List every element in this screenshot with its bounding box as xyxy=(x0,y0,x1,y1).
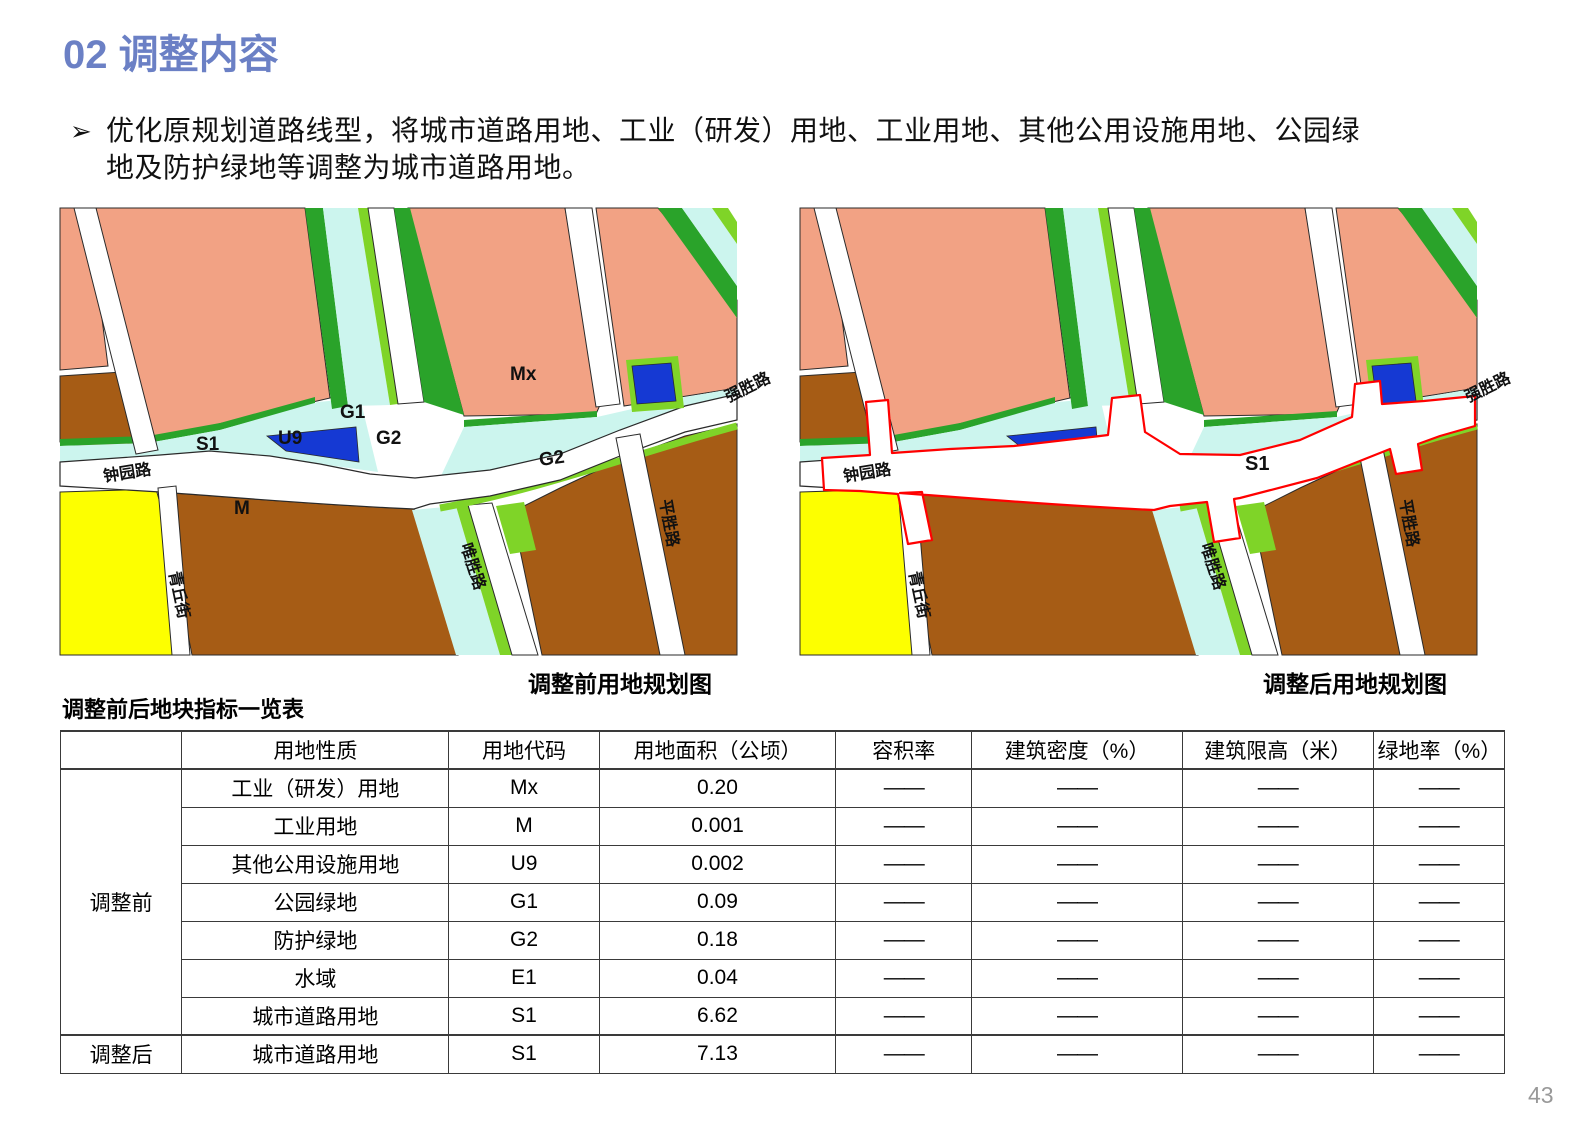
group-label-after: 调整后 xyxy=(61,1035,182,1073)
cell-density: —— xyxy=(972,769,1183,807)
zone-m-block-main xyxy=(160,492,458,655)
bullet-text: 优化原规划道路线型，将城市道路用地、工业（研发）用地、工业用地、其他公用设施用地… xyxy=(106,112,1540,186)
cell-far: —— xyxy=(836,1035,972,1073)
cell-height: —— xyxy=(1182,997,1373,1035)
cell-land-use: 防护绿地 xyxy=(182,921,449,959)
indicator-table: 用地性质 用地代码 用地面积（公顷） 容积率 建筑密度（%） 建筑限高（米） 绿… xyxy=(60,730,1505,1074)
slide-page: 02 调整内容 ➢ 优化原规划道路线型，将城市道路用地、工业（研发）用地、工业用… xyxy=(0,0,1587,1123)
cell-area: 0.20 xyxy=(599,769,836,807)
cell-code: Mx xyxy=(449,769,599,807)
label-g2-east: G2 xyxy=(538,447,566,471)
cell-green: —— xyxy=(1373,807,1504,845)
cell-land-use: 水域 xyxy=(182,959,449,997)
cell-far: —— xyxy=(836,921,972,959)
cell-land-use: 其他公用设施用地 xyxy=(182,845,449,883)
map-after-plan: S1 钟园路 青丘街 唯胜路 平胜路 强胜路 xyxy=(800,208,1477,655)
cell-far: —— xyxy=(836,807,972,845)
bullet-line-1: 优化原规划道路线型，将城市道路用地、工业（研发）用地、工业用地、其他公用设施用地… xyxy=(106,115,1360,146)
cell-height: —— xyxy=(1182,807,1373,845)
header-code: 用地代码 xyxy=(449,731,599,769)
cell-code: E1 xyxy=(449,959,599,997)
cell-density: —— xyxy=(972,921,1183,959)
cell-far: —— xyxy=(836,769,972,807)
cell-green: —— xyxy=(1373,883,1504,921)
table-row: 公园绿地 G1 0.09 —— —— —— —— xyxy=(61,883,1505,921)
header-far: 容积率 xyxy=(836,731,972,769)
label-s1: S1 xyxy=(196,434,220,455)
cell-density: —— xyxy=(972,883,1183,921)
cell-density: —— xyxy=(972,1035,1183,1073)
zone-blue-square xyxy=(632,363,676,404)
cell-green: —— xyxy=(1373,921,1504,959)
cell-area: 6.62 xyxy=(599,997,836,1035)
cell-density: —— xyxy=(972,959,1183,997)
cell-code: S1 xyxy=(449,1035,599,1073)
header-density: 建筑密度（%） xyxy=(972,731,1183,769)
cell-height: —— xyxy=(1182,883,1373,921)
bullet-item: ➢ 优化原规划道路线型，将城市道路用地、工业（研发）用地、工业用地、其他公用设施… xyxy=(70,112,1540,186)
cell-density: —— xyxy=(972,807,1183,845)
header-height: 建筑限高（米） xyxy=(1182,731,1373,769)
page-title: 02 调整内容 xyxy=(63,22,279,80)
cell-area: 0.001 xyxy=(599,807,836,845)
label-mx: Mx xyxy=(510,364,537,385)
cell-land-use: 公园绿地 xyxy=(182,883,449,921)
table-row: 其他公用设施用地 U9 0.002 —— —— —— —— xyxy=(61,845,1505,883)
cell-code: G2 xyxy=(449,921,599,959)
cell-area: 0.002 xyxy=(599,845,836,883)
map-before-svg: Mx G1 U9 G2 S1 G2 M 钟园路 青丘街 唯胜路 平胜路 强胜路 xyxy=(60,208,737,655)
table-row: 城市道路用地 S1 6.62 —— —— —— —— xyxy=(61,997,1505,1035)
cell-height: —— xyxy=(1182,845,1373,883)
cell-density: —— xyxy=(972,997,1183,1035)
table-row: 水域 E1 0.04 —— —— —— —— xyxy=(61,959,1505,997)
cell-far: —— xyxy=(836,997,972,1035)
cell-area: 0.04 xyxy=(599,959,836,997)
group-label-before: 调整前 xyxy=(61,769,182,1035)
header-group xyxy=(61,731,182,769)
cell-far: —— xyxy=(836,959,972,997)
table-row: 工业用地 M 0.001 —— —— —— —— xyxy=(61,807,1505,845)
cell-code: S1 xyxy=(449,997,599,1035)
table-row: 防护绿地 G2 0.18 —— —— —— —— xyxy=(61,921,1505,959)
cell-area: 7.13 xyxy=(599,1035,836,1073)
cell-height: —— xyxy=(1182,959,1373,997)
table-row: 调整前 工业（研发）用地 Mx 0.20 —— —— —— —— xyxy=(61,769,1505,807)
cell-land-use: 城市道路用地 xyxy=(182,1035,449,1073)
label-s1: S1 xyxy=(1245,453,1269,475)
table-header-row: 用地性质 用地代码 用地面积（公顷） 容积率 建筑密度（%） 建筑限高（米） 绿… xyxy=(61,731,1505,769)
cell-height: —— xyxy=(1182,921,1373,959)
caption-map-after: 调整后用地规划图 xyxy=(1190,665,1520,699)
table-title: 调整前后地块指标一览表 xyxy=(62,692,304,724)
header-land-use: 用地性质 xyxy=(182,731,449,769)
header-green: 绿地率（%） xyxy=(1373,731,1504,769)
cell-green: —— xyxy=(1373,959,1504,997)
cell-land-use: 工业用地 xyxy=(182,807,449,845)
cell-density: —— xyxy=(972,845,1183,883)
cell-height: —— xyxy=(1182,769,1373,807)
label-g2-west: G2 xyxy=(376,428,401,449)
cell-green: —— xyxy=(1373,769,1504,807)
cell-code: G1 xyxy=(449,883,599,921)
cell-height: —— xyxy=(1182,1035,1373,1073)
map-after-svg: S1 钟园路 青丘街 唯胜路 平胜路 强胜路 xyxy=(800,208,1477,655)
cell-area: 0.18 xyxy=(599,921,836,959)
cell-green: —— xyxy=(1373,1035,1504,1073)
bullet-arrow-icon: ➢ xyxy=(70,116,92,147)
zone-block-brown-main xyxy=(900,492,1198,655)
label-u9: U9 xyxy=(278,428,302,449)
cell-code: M xyxy=(449,807,599,845)
cell-far: —— xyxy=(836,845,972,883)
cell-land-use: 工业（研发）用地 xyxy=(182,769,449,807)
label-m: M xyxy=(234,498,250,519)
cell-far: —— xyxy=(836,883,972,921)
cell-green: —— xyxy=(1373,845,1504,883)
caption-map-before: 调整前用地规划图 xyxy=(455,665,785,699)
cell-area: 0.09 xyxy=(599,883,836,921)
cell-code: U9 xyxy=(449,845,599,883)
cell-green: —— xyxy=(1373,997,1504,1035)
page-number: 43 xyxy=(1528,1082,1554,1109)
map-before-plan: Mx G1 U9 G2 S1 G2 M 钟园路 青丘街 唯胜路 平胜路 强胜路 xyxy=(60,208,737,655)
header-area: 用地面积（公顷） xyxy=(599,731,836,769)
table-row: 调整后 城市道路用地 S1 7.13 —— —— —— —— xyxy=(61,1035,1505,1073)
cell-land-use: 城市道路用地 xyxy=(182,997,449,1035)
label-g1: G1 xyxy=(340,402,366,423)
bullet-line-2: 地及防护绿地等调整为城市道路用地。 xyxy=(106,152,591,183)
